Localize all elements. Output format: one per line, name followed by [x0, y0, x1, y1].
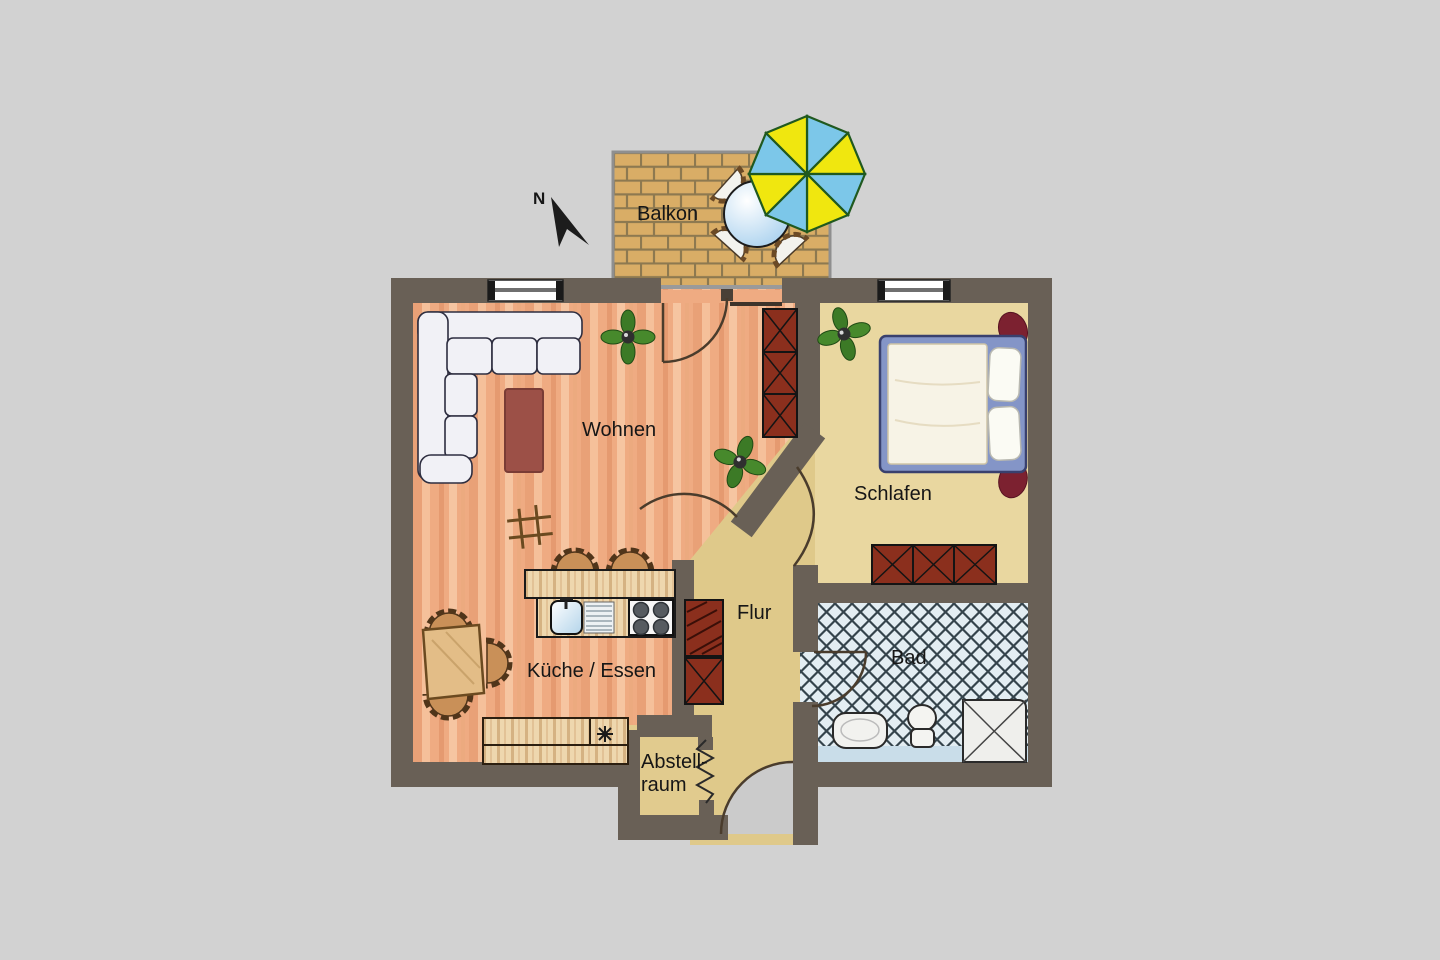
kueche-label: Küche / Essen: [527, 660, 656, 682]
corner-shower: [963, 700, 1026, 762]
bed: [880, 308, 1032, 501]
wohnen-label: Wohnen: [582, 419, 656, 441]
flur-label: Flur: [737, 602, 772, 624]
schlafen-label: Schlafen: [854, 483, 932, 505]
balcony-fixed-pane: [730, 302, 782, 306]
balcony-label: Balkon: [637, 203, 698, 225]
toilet: [908, 705, 936, 747]
bad-label: Bad: [891, 647, 927, 669]
floor-plan-canvas: Balkon N: [0, 0, 1440, 960]
kitchen-sideboard: [483, 718, 628, 764]
abstellraum-label-line1: Abstell-: [641, 751, 708, 773]
star-symbol: [597, 726, 613, 742]
drainer: [584, 602, 614, 633]
bed-pillow: [988, 406, 1022, 461]
balcony-edge-line: [661, 285, 782, 289]
bed-duvet: [888, 344, 987, 464]
window-wohnen: [488, 280, 563, 301]
wardrobe: [872, 545, 996, 584]
window-schlafen: [878, 280, 950, 301]
abstellraum-label-line2: raum: [641, 774, 687, 796]
north-label: N: [533, 189, 545, 208]
parasol-icon: [749, 116, 865, 232]
floor-plan-page: Balkon N: [0, 0, 1440, 960]
bed-pillow: [988, 347, 1022, 402]
hall-cabinet: [685, 600, 723, 704]
living-shelf: [763, 309, 797, 437]
washbasin: [833, 713, 887, 748]
stove: [629, 600, 673, 635]
kitchen-counter: [525, 570, 675, 598]
coffee-table: [505, 389, 543, 472]
